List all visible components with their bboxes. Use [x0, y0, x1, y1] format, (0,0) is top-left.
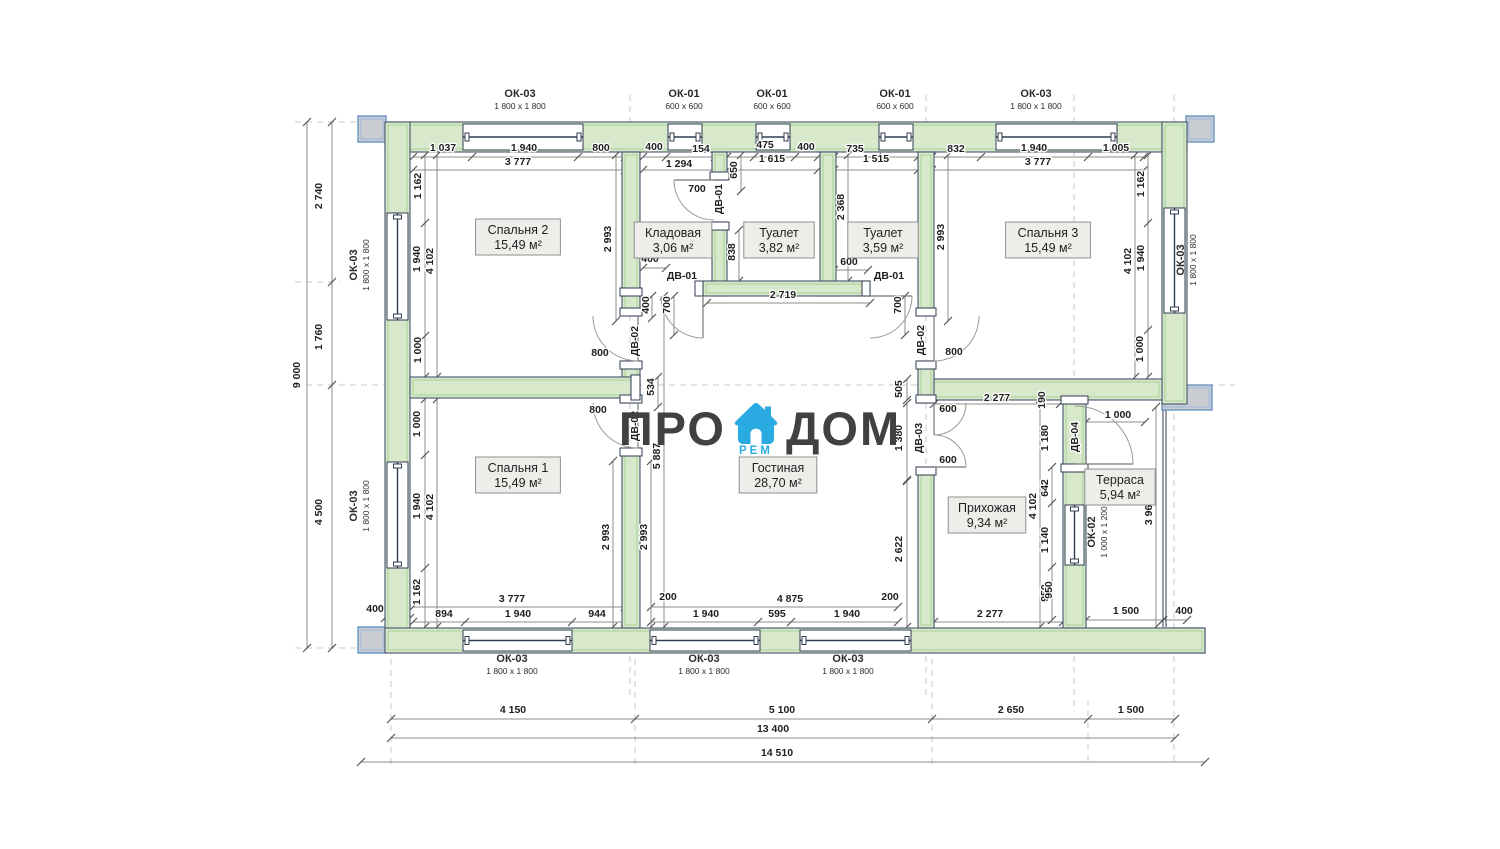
room-label-text: Спальня 2: [488, 223, 549, 237]
window-tag-text: 1 800 x 1 800: [486, 666, 538, 676]
logo-text-rem: РЕМ: [739, 445, 773, 457]
dim-label: 2 993: [638, 524, 650, 550]
window-post: [802, 637, 806, 645]
window-post: [652, 637, 656, 645]
dim-label: 4 875: [777, 593, 803, 605]
window-post: [905, 637, 909, 645]
dim-label: ДВ-01: [667, 270, 697, 282]
dim-label: 400: [640, 296, 652, 314]
outer-wall: [385, 122, 410, 650]
dim-label: 1 000: [1134, 336, 1146, 362]
wall-cap: [916, 395, 936, 403]
window-tag-text: ОК-03: [496, 653, 527, 665]
window-tag-text: ОК-03: [832, 653, 863, 665]
logo-text-dom: ДОМ: [786, 405, 901, 452]
window-tag-text: 1 800 x 1 800: [822, 666, 874, 676]
room-label-text: 5,94 м²: [1100, 488, 1141, 502]
dim-label: 2 368: [835, 194, 847, 220]
wall-cap: [695, 281, 703, 296]
dim-label: 1 940: [693, 608, 719, 620]
window-post: [394, 562, 402, 566]
inner-wall: [918, 467, 934, 628]
dim-label: 1 500: [1113, 605, 1139, 617]
window-tag-text: 1 800 x 1 800: [1010, 101, 1062, 111]
wall-cap: [620, 308, 642, 316]
room-label-text: 15,49 м²: [494, 238, 542, 252]
room-label-text: Спальня 3: [1018, 226, 1079, 240]
dim-label: 1 037: [430, 142, 456, 154]
dim-label: ДВ-04: [1069, 422, 1081, 452]
room-label-text: 3,82 м²: [759, 241, 800, 255]
dim-label: ДВ-01: [874, 270, 904, 282]
room-label-text: Туалет: [759, 226, 799, 240]
window-tag-text: 1 800 x 1 800: [1188, 234, 1198, 286]
dim-label: 2 993: [935, 224, 947, 250]
window-post: [394, 215, 402, 219]
window-tag: ОК-031 800 x 1 800: [678, 653, 730, 676]
wall-cap: [620, 361, 642, 369]
window-tag: ОК-01600 x 600: [876, 88, 914, 111]
dim-label: 2 622: [893, 536, 905, 562]
wall-cap: [916, 467, 936, 475]
window-tag-text: ОК-01: [756, 88, 787, 100]
wall-cap: [620, 288, 642, 296]
dim-label: 4 102: [424, 248, 436, 274]
room-label-text: Туалет: [863, 226, 903, 240]
dim-label: 14 510: [761, 747, 793, 759]
wall-cap: [916, 361, 936, 369]
dim-label: 1 760: [313, 324, 325, 350]
dim-label: 832: [947, 143, 965, 155]
window-post: [577, 133, 581, 141]
wall-cap: [1061, 396, 1088, 404]
dim-label: 1 940: [511, 142, 537, 154]
dim-label: 1 005: [1103, 142, 1129, 154]
room-label-text: 15,49 м²: [494, 476, 542, 490]
window-tag-text: ОК-01: [879, 88, 910, 100]
dim-label: 475: [756, 139, 774, 151]
window-post: [1071, 559, 1079, 563]
window-post: [1171, 307, 1179, 311]
wall-cap: [1061, 464, 1088, 472]
logo: ПРО РЕМ ДОМ: [615, 396, 905, 460]
window-tag-text: ОК-02: [1086, 516, 1098, 547]
dim-label: 735: [846, 143, 864, 155]
dim-label: 1 000: [412, 337, 424, 363]
window-tag: ОК-031 800 x 1 800: [348, 239, 371, 291]
window-tag-text: 1 000 x 1 200: [1099, 506, 1109, 558]
dim-label: 4 102: [424, 494, 436, 520]
floor-plan-page: 1 0371 9408004001544754007358321 9401 00…: [0, 0, 1500, 849]
dim-label: 1 000: [411, 411, 423, 437]
window-post: [670, 133, 674, 141]
window-post: [696, 133, 700, 141]
window-tag-text: ОК-03: [1020, 88, 1051, 100]
dim-label: 2 277: [977, 608, 1003, 620]
logo-text-pro: ПРО: [619, 405, 726, 452]
window-tag: ОК-01600 x 600: [665, 88, 703, 111]
window-tag-text: 600 x 600: [753, 101, 791, 111]
dim-label: 1 162: [412, 173, 424, 199]
dim-label: 190: [1036, 391, 1048, 409]
dim-label: 3 777: [505, 156, 531, 168]
eave-corner: [358, 116, 386, 142]
house-icon: [734, 402, 778, 446]
window-post: [881, 133, 885, 141]
dim-label: ДВ-03: [913, 423, 925, 453]
dim-label: 1 000: [1105, 409, 1131, 421]
dim-label: 1 140: [1039, 527, 1051, 553]
window-post: [1171, 210, 1179, 214]
dim-label: 650: [728, 161, 740, 179]
dim-label: 400: [366, 603, 384, 615]
window-post: [998, 133, 1002, 141]
window-tag: ОК-031 800 x 1 800: [822, 653, 874, 676]
dim-label: 200: [881, 591, 899, 603]
dim-label: 838: [726, 243, 738, 261]
dim-label: ДВ-01: [713, 184, 725, 214]
window-tag: ОК-031 800 x 1 800: [348, 480, 371, 532]
window-tag-text: 1 800 x 1 800: [361, 239, 371, 291]
dim-label: 1 940: [505, 608, 531, 620]
dim-label: 4 102: [1027, 493, 1039, 519]
dim-label: 400: [1175, 605, 1193, 617]
window-tag: ОК-031 800 x 1 800: [494, 88, 546, 111]
dim-label: 4 150: [500, 704, 526, 716]
dim-label: 1 940: [411, 246, 423, 272]
dim-label: 4 500: [313, 499, 325, 525]
dim-label: 1 162: [411, 579, 423, 605]
dim-label: ДВ-02: [915, 325, 927, 355]
inner-wall: [820, 152, 836, 296]
dim-label: 400: [797, 141, 815, 153]
wall-cap: [916, 308, 936, 316]
dim-label: 1 162: [1135, 171, 1147, 197]
dim-label: 13 400: [757, 723, 789, 735]
dim-label: 2 719: [770, 289, 796, 301]
dim-label: 2 993: [602, 226, 614, 252]
room-label-text: Терраса: [1096, 473, 1144, 487]
room-label-text: 15,49 м²: [1024, 241, 1072, 255]
window-tag-text: 1 800 x 1 800: [361, 480, 371, 532]
dim-label: 595: [768, 608, 786, 620]
dim-label: 600: [939, 403, 957, 415]
inner-wall: [918, 152, 934, 316]
window-tag-text: ОК-03: [688, 653, 719, 665]
window-tag-text: 1 800 x 1 800: [494, 101, 546, 111]
door-swing-arc: [870, 296, 912, 338]
dim-label: 700: [688, 183, 706, 195]
dim-label: 1 940: [1135, 245, 1147, 271]
window-post: [1111, 133, 1115, 141]
room-label-text: Прихожая: [958, 501, 1016, 515]
room-label-text: 3,06 м²: [653, 241, 694, 255]
dim-label: 600: [939, 454, 957, 466]
dim-label: 700: [892, 296, 904, 314]
window-tag-text: 600 x 600: [876, 101, 914, 111]
dim-label: 3 777: [1025, 156, 1051, 168]
window-tag-text: 1 800 x 1 800: [678, 666, 730, 676]
dim-label: 800: [591, 347, 609, 359]
dim-label: 700: [661, 296, 673, 314]
window-tag: ОК-031 800 x 1 800: [1010, 88, 1062, 111]
window-tag-text: ОК-03: [348, 249, 360, 280]
window-post: [1071, 507, 1079, 511]
dim-label: 154: [692, 143, 710, 155]
dim-label: 1 294: [666, 158, 692, 170]
dim-label: 894: [435, 608, 453, 620]
dim-label: 200: [659, 591, 677, 603]
window-post: [465, 133, 469, 141]
room-label-text: Гостиная: [752, 461, 804, 475]
window-post: [566, 637, 570, 645]
dim-label: 1 615: [759, 153, 785, 165]
dim-label: 1 180: [1039, 425, 1051, 451]
dim-label: 1 500: [1118, 704, 1144, 716]
room-label-text: Кладовая: [645, 226, 701, 240]
window-tag: ОК-01600 x 600: [753, 88, 791, 111]
dim-label: 950: [1043, 581, 1055, 599]
wall-cap: [862, 281, 870, 296]
dim-label: 944: [588, 608, 606, 620]
window-tag: ОК-021 000 x 1 200: [1086, 506, 1109, 558]
room-label-text: 3,59 м²: [863, 241, 904, 255]
window-tag-text: ОК-03: [504, 88, 535, 100]
wall-cap: [710, 172, 729, 180]
window-post: [754, 637, 758, 645]
dim-label: 400: [645, 141, 663, 153]
dim-label: 2 277: [984, 392, 1010, 404]
dim-label: 642: [1039, 479, 1051, 497]
dim-label: 1 940: [834, 608, 860, 620]
dim-label: 5 100: [769, 704, 795, 716]
window-post: [394, 314, 402, 318]
dim-label: 800: [589, 404, 607, 416]
dim-label: 534: [645, 378, 657, 396]
dim-label: 2 650: [998, 704, 1024, 716]
window-tag-text: 600 x 600: [665, 101, 703, 111]
dim-label: ДВ-02: [629, 326, 641, 356]
window-post: [784, 133, 788, 141]
dim-label: 1 940: [411, 493, 423, 519]
window-post: [394, 464, 402, 468]
window-tag: ОК-031 800 x 1 800: [486, 653, 538, 676]
dim-label: 4 102: [1122, 248, 1134, 274]
dim-label: 3 777: [499, 593, 525, 605]
window-tag-text: ОК-01: [668, 88, 699, 100]
dim-label: 2 740: [313, 183, 325, 209]
room-label-text: 28,70 м²: [754, 476, 802, 490]
window-tag-text: ОК-03: [1175, 244, 1187, 275]
dim-label: 800: [945, 346, 963, 358]
room-label-text: Спальня 1: [488, 461, 549, 475]
room-label-text: 9,34 м²: [967, 516, 1008, 530]
dim-label: 800: [592, 142, 610, 154]
eave-corner: [358, 627, 386, 653]
window-post: [465, 637, 469, 645]
dim-label: 9 000: [291, 362, 303, 388]
dim-label: 2 993: [600, 524, 612, 550]
wall-cap: [710, 222, 729, 230]
eave-corner: [1186, 116, 1214, 142]
window-post: [907, 133, 911, 141]
window-tag-text: ОК-03: [348, 490, 360, 521]
dim-label: 1 940: [1021, 142, 1047, 154]
dim-label: 1 515: [863, 153, 889, 165]
